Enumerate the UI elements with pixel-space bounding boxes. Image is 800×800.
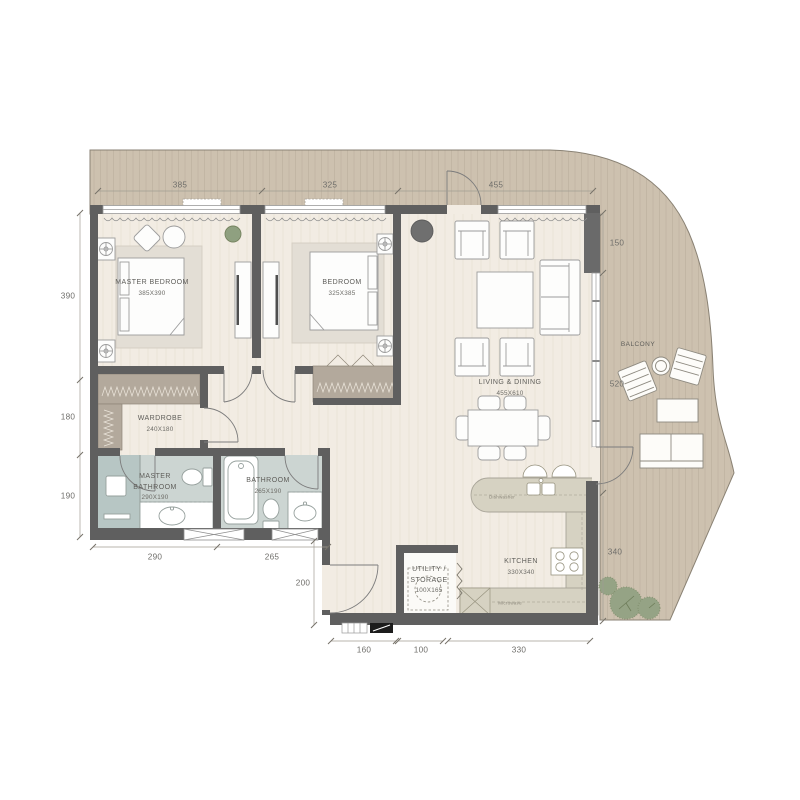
- shower-bar-icon: [104, 514, 130, 519]
- vanity-icon: [140, 502, 213, 530]
- label-dishwasher: Dishwasher: [489, 495, 515, 500]
- dim-bottom-3: 330: [512, 646, 527, 655]
- label-kitchen: KITCHEN 330X340: [504, 557, 538, 577]
- tv-icon: [276, 275, 279, 325]
- cooktop-icon: [551, 548, 583, 575]
- vanity-icon: [288, 492, 322, 530]
- dim-left-2: 180: [61, 413, 76, 422]
- dim-bottom-1: 160: [357, 646, 372, 655]
- dim-left-1: 390: [61, 292, 76, 301]
- round-table-icon: [652, 357, 670, 375]
- dim-bottom-2: 100: [414, 646, 429, 655]
- planter-icon: [411, 220, 433, 242]
- armchair-icon: [500, 338, 534, 376]
- dim-bath-2: 265: [265, 553, 280, 562]
- toilet-icon: [182, 468, 212, 486]
- label-bathroom: BATHROOM 265X190: [246, 476, 290, 496]
- label-utility: UTILITY / STORAGE 100X165: [407, 565, 451, 595]
- dim-bath-1: 290: [148, 553, 163, 562]
- armchair-icon: [455, 221, 489, 259]
- side-table-icon: [657, 399, 698, 422]
- fridge-icon: [460, 588, 490, 615]
- label-master-bathroom: MASTER BATHROOM 290X190: [126, 472, 184, 502]
- dim-top-3: 455: [489, 181, 504, 190]
- dim-top-1: 385: [173, 181, 188, 190]
- floor-plan: MASTER BEDROOM 385X390 BEDROOM 325X385 W…: [0, 0, 800, 800]
- label-living-dining: LIVING & DINING 455X610: [479, 378, 542, 398]
- dim-entry: 200: [296, 579, 311, 588]
- plant-icon: [225, 226, 241, 242]
- dim-right-3: 340: [608, 548, 623, 557]
- armchair-icon: [500, 221, 534, 259]
- armchair-icon: [455, 338, 489, 376]
- label-microwave: Microwave: [498, 601, 522, 606]
- floor-plan-drawing: [0, 0, 800, 800]
- dim-left-3: 190: [61, 492, 76, 501]
- label-wardrobe: WARDROBE 240X180: [138, 414, 183, 434]
- coffee-table-icon: [477, 272, 533, 328]
- outdoor-sofa-icon: [640, 434, 703, 468]
- column: [584, 213, 600, 273]
- dim-top-2: 325: [323, 181, 338, 190]
- dining-table-icon: [468, 410, 538, 446]
- dim-right-1: 150: [610, 239, 625, 248]
- toilet-icon: [263, 499, 279, 529]
- shower-seat-icon: [106, 476, 126, 496]
- tv-icon: [237, 275, 240, 325]
- label-bedroom: BEDROOM 325X385: [322, 278, 361, 298]
- label-master-bedroom: MASTER BEDROOM 385X390: [115, 278, 189, 298]
- sofa-icon: [540, 260, 580, 335]
- label-balcony: BALCONY: [621, 340, 655, 350]
- dim-right-2: 520: [610, 380, 625, 389]
- pouf-icon: [163, 226, 185, 248]
